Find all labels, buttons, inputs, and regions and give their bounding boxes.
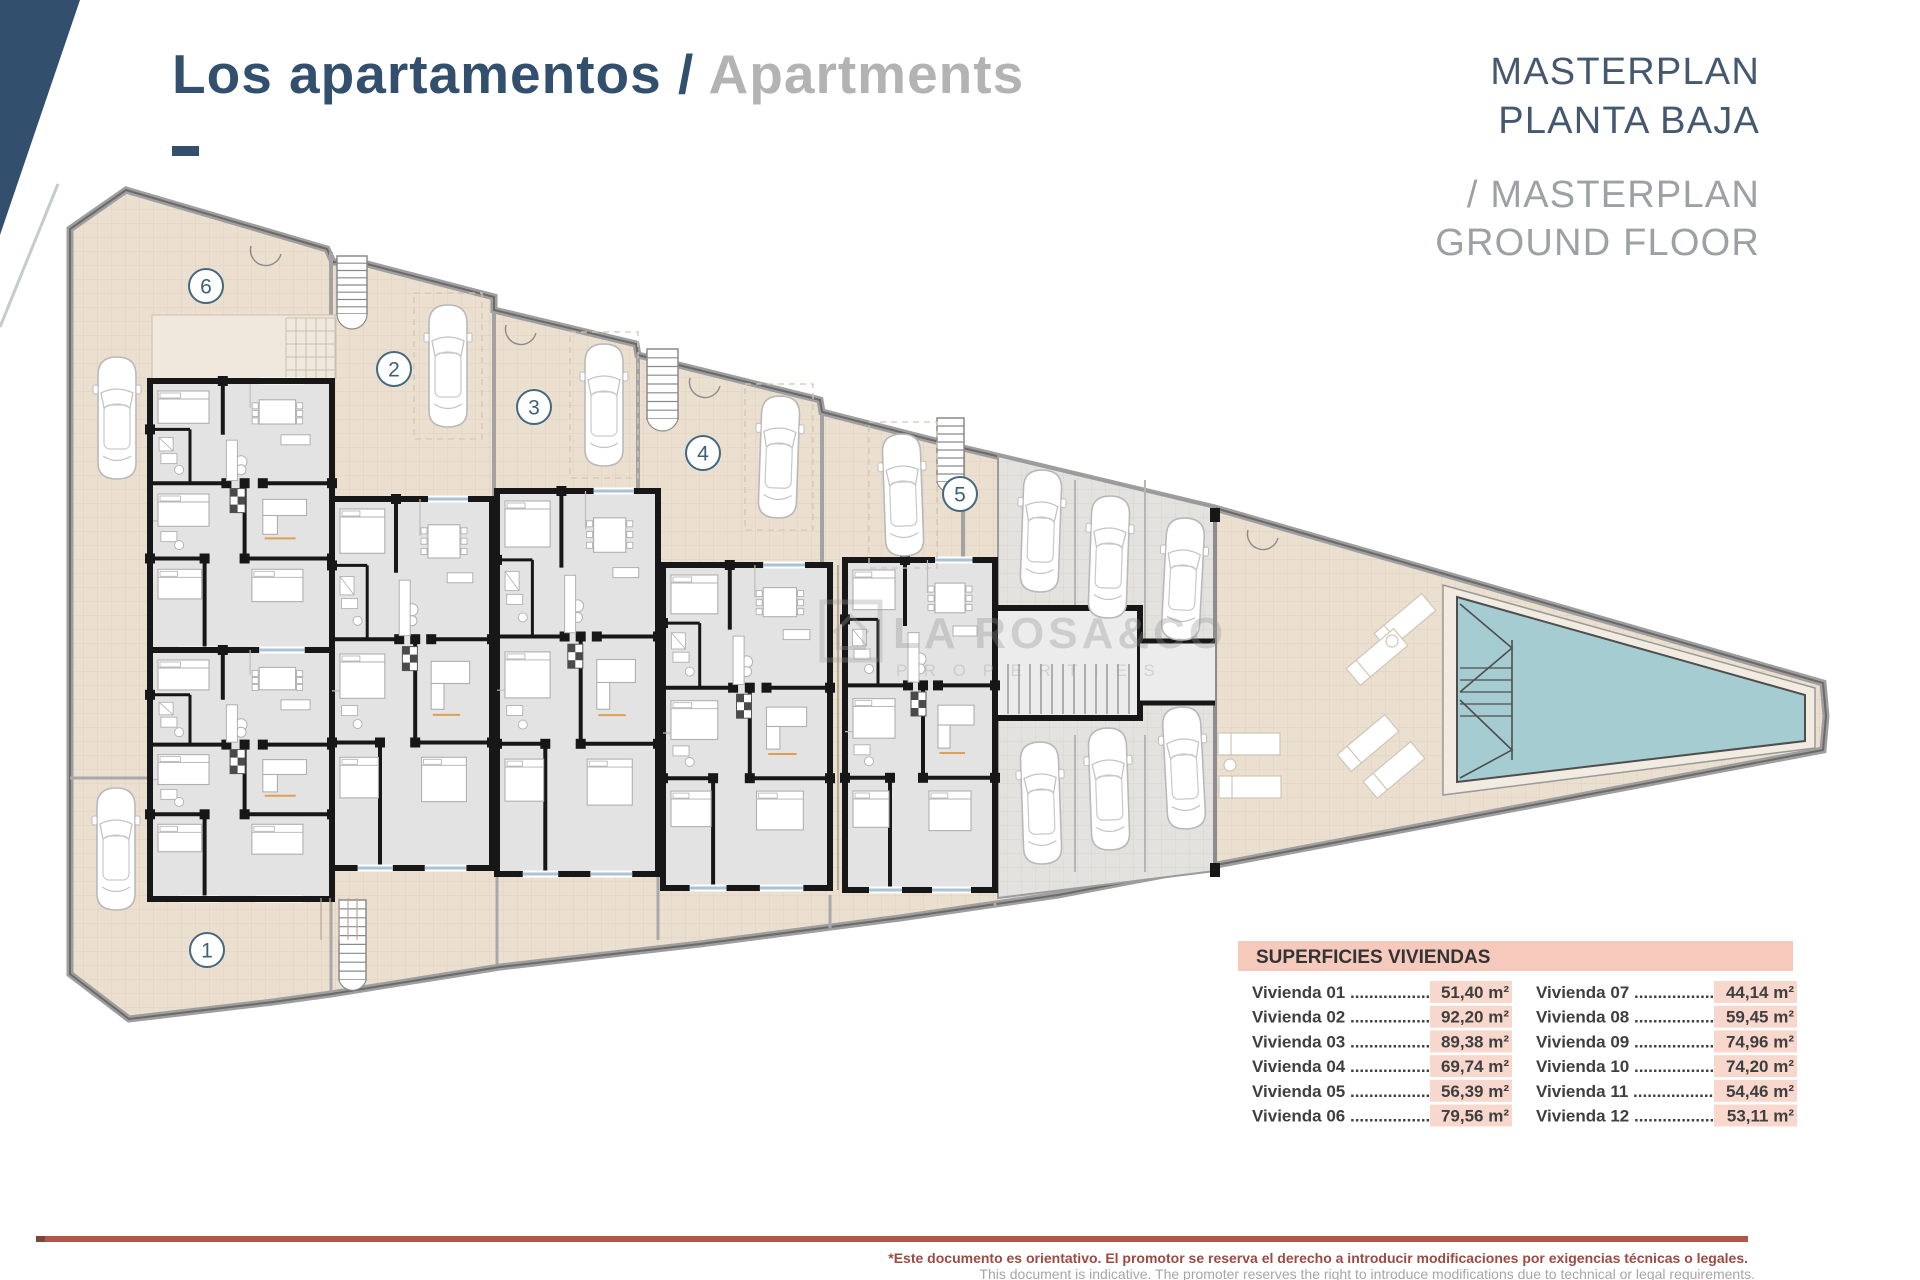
svg-text:*Este documento es orientativo: *Este documento es orientativo. El promo… [888, 1250, 1748, 1266]
svg-text:Vivienda 04 .................: Vivienda 04 ................. [1252, 1057, 1430, 1076]
svg-text:4: 4 [697, 443, 709, 466]
svg-text:54,46 m²: 54,46 m² [1726, 1082, 1794, 1101]
svg-text:Vivienda 07 .................: Vivienda 07 ................. [1536, 983, 1714, 1002]
svg-text:79,56 m²: 79,56 m² [1441, 1107, 1509, 1126]
svg-text:/ MASTERPLAN: / MASTERPLAN [1467, 174, 1760, 216]
svg-text:GROUND FLOOR: GROUND FLOOR [1435, 222, 1760, 264]
svg-text:89,38 m²: 89,38 m² [1441, 1032, 1509, 1051]
svg-text:Vivienda 06 .................: Vivienda 06 ................. [1252, 1107, 1430, 1126]
svg-text:92,20 m²: 92,20 m² [1441, 1008, 1509, 1027]
svg-text:5: 5 [954, 484, 966, 507]
svg-text:Los apartamentos / Apartments: Los apartamentos / Apartments [172, 43, 1024, 105]
svg-text:Vivienda 01 .................: Vivienda 01 ................. [1252, 983, 1430, 1002]
svg-text:56,39 m²: 56,39 m² [1441, 1082, 1509, 1101]
svg-text:MASTERPLAN: MASTERPLAN [1490, 51, 1760, 93]
svg-text:44,14 m²: 44,14 m² [1726, 983, 1794, 1002]
svg-text:This document is indicative. T: This document is indicative. The promote… [979, 1266, 1755, 1280]
svg-text:Vivienda 11 .................: Vivienda 11 ................. [1536, 1082, 1713, 1101]
svg-text:6: 6 [200, 276, 212, 299]
svg-text:P R O P E R T I E S: P R O P E R T I E S [896, 661, 1161, 680]
svg-text:SUPERFICIES VIVIENDAS: SUPERFICIES VIVIENDAS [1256, 947, 1490, 968]
svg-text:74,20 m²: 74,20 m² [1726, 1057, 1794, 1076]
svg-text:LA ROSA&CO: LA ROSA&CO [893, 609, 1227, 658]
svg-text:Vivienda 12 .................: Vivienda 12 ................. [1536, 1107, 1714, 1126]
svg-text:69,74 m²: 69,74 m² [1441, 1057, 1509, 1076]
svg-text:2: 2 [388, 359, 400, 382]
svg-text:Vivienda 03 .................: Vivienda 03 ................. [1252, 1032, 1430, 1051]
svg-text:51,40 m²: 51,40 m² [1441, 983, 1509, 1002]
svg-text:74,96 m²: 74,96 m² [1726, 1032, 1794, 1051]
svg-text:Vivienda 02 .................: Vivienda 02 ................. [1252, 1008, 1430, 1027]
svg-text:Vivienda 10 .................: Vivienda 10 ................. [1536, 1057, 1714, 1076]
svg-text:Vivienda 09 .................: Vivienda 09 ................. [1536, 1032, 1714, 1051]
svg-text:53,11 m²: 53,11 m² [1727, 1107, 1794, 1126]
svg-text:3: 3 [528, 397, 540, 420]
svg-text:1: 1 [201, 940, 213, 963]
svg-text:59,45 m²: 59,45 m² [1726, 1008, 1794, 1027]
svg-text:Vivienda 05 .................: Vivienda 05 ................. [1252, 1082, 1430, 1101]
svg-text:PLANTA BAJA: PLANTA BAJA [1498, 100, 1760, 142]
svg-text:Vivienda 08 .................: Vivienda 08 ................. [1536, 1008, 1714, 1027]
